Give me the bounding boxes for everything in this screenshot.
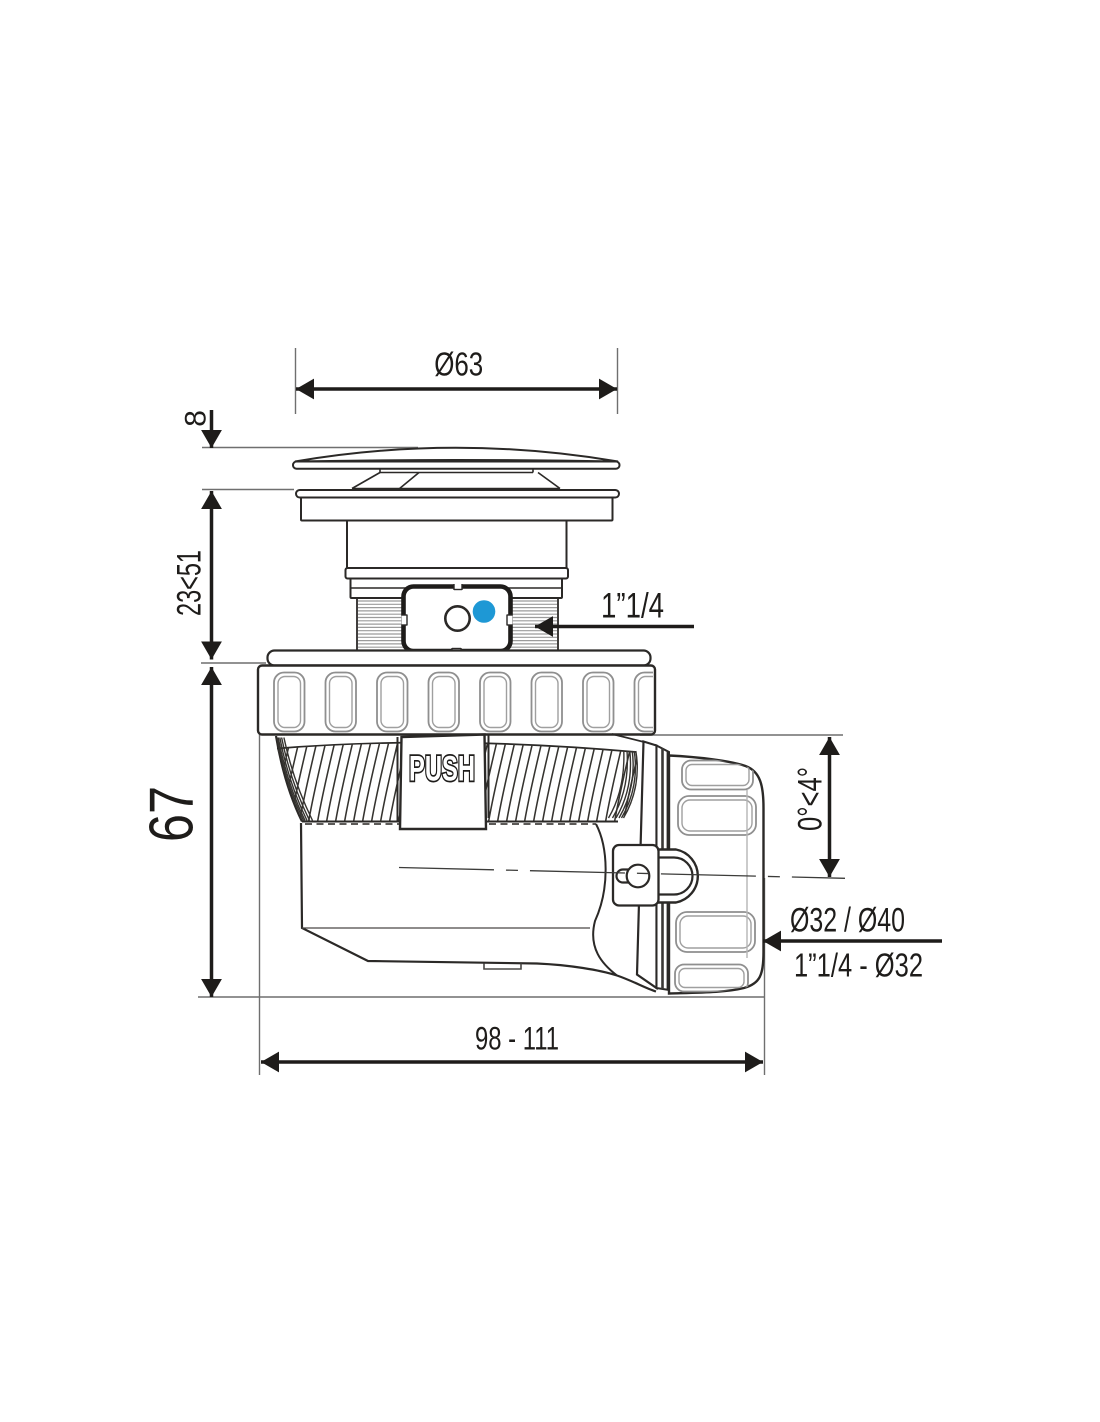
svg-text:0°<4°: 0°<4° — [792, 767, 830, 831]
svg-text:67: 67 — [138, 786, 207, 842]
svg-text:23<51: 23<51 — [171, 550, 209, 616]
svg-text:98 - 111: 98 - 111 — [475, 1021, 559, 1057]
svg-text:Ø63: Ø63 — [434, 346, 483, 383]
svg-text:1”1/4: 1”1/4 — [601, 587, 664, 626]
svg-text:1”1/4 - Ø32: 1”1/4 - Ø32 — [794, 947, 923, 984]
svg-text:PUSH: PUSH — [409, 750, 475, 789]
svg-text:8: 8 — [180, 410, 213, 427]
svg-text:Ø32 / Ø40: Ø32 / Ø40 — [790, 902, 905, 940]
